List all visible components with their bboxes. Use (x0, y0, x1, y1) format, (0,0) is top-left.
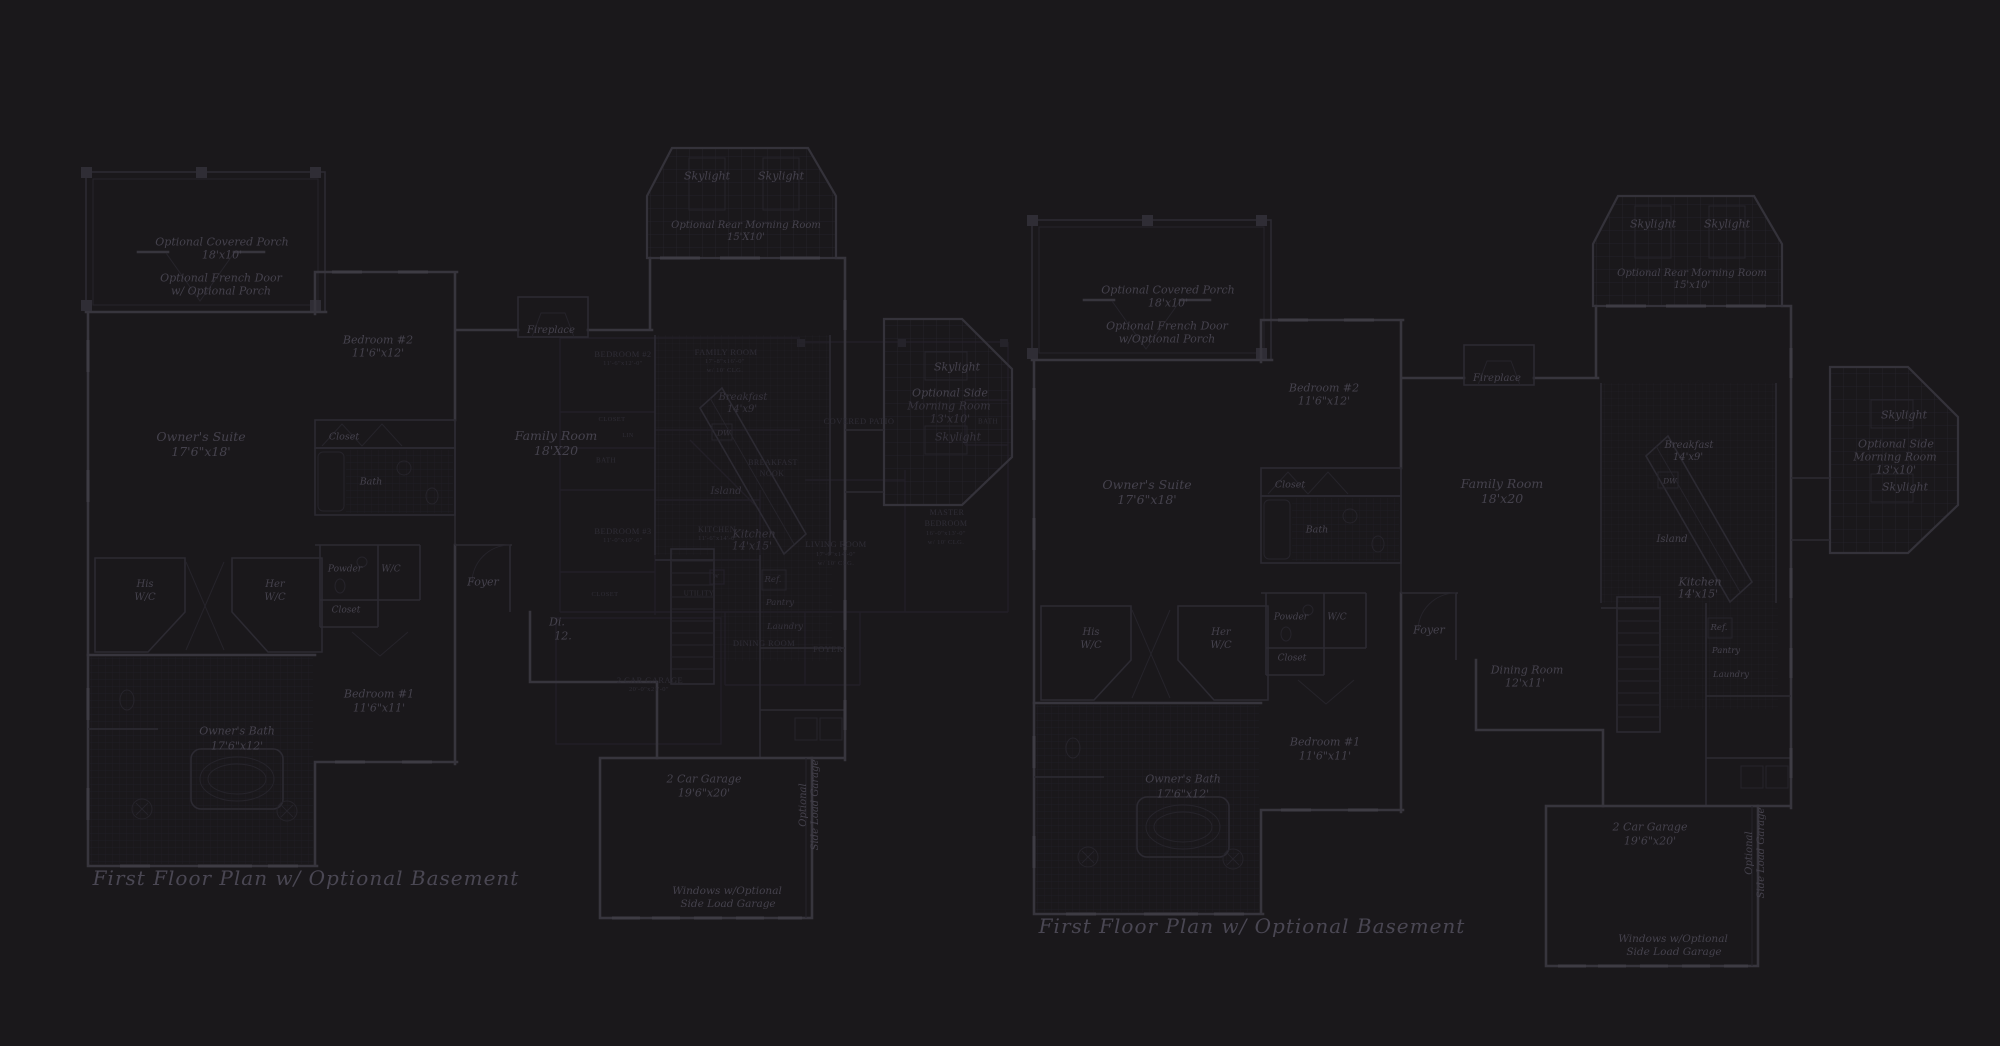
room-label: Side Load Garage (1626, 947, 1721, 958)
room-label: 19'6"x20' (678, 788, 730, 799)
room-label: 14'x9' (1673, 453, 1703, 463)
room-label: Skylight (1704, 219, 1750, 230)
room-label: 18'x20 (1481, 493, 1523, 506)
room-label: 14'x15' (1678, 589, 1718, 600)
room-label: Family Room (515, 430, 597, 443)
room-label: Skylight (684, 171, 730, 182)
room-label: COVERED PATIO (824, 417, 895, 426)
room-label: Optional Rear Morning Room (671, 221, 821, 231)
room-label: NOOK (760, 470, 785, 478)
room-label: Closet (329, 432, 359, 442)
room-label: Fireplace (527, 326, 575, 336)
room-label: Powder (1274, 614, 1308, 623)
room-label: BEDROOM (925, 520, 968, 528)
room-label: Bath (1306, 525, 1329, 535)
room-label: W/C (381, 566, 400, 575)
room-label: w/ 10' CLG. (928, 540, 964, 547)
room-label: 20'-0"x21'-0" (629, 687, 669, 694)
room-label: Skylight (935, 432, 981, 443)
room-label: w/ Optional Porch (171, 286, 271, 297)
room-label: Optional French Door (1106, 321, 1228, 332)
plan-title: First Floor Plan w/ Optional Basement (93, 868, 520, 888)
room-label: 11'-6"x14'-0" (698, 536, 738, 543)
room-label: Pantry (766, 599, 794, 608)
room-label: Optional Rear Morning Room (1617, 269, 1767, 279)
room-label: W/C (264, 593, 285, 603)
room-label: 12'x11' (1505, 678, 1545, 689)
room-label: Skylight (1882, 482, 1928, 493)
room-label: Side Load Garage (811, 760, 821, 851)
room-label: 11'-6"x12'-0" (603, 361, 643, 368)
room-label: w/ 10' CLG. (707, 368, 743, 375)
room-label: Owner's Suite (156, 431, 245, 444)
room-label: W (713, 574, 720, 581)
room-label: 16'-0"x13'-0" (926, 531, 966, 538)
room-label: Bedroom #2 (1289, 383, 1359, 394)
room-label: 2 CAR GARAGE (617, 676, 683, 685)
room-label: 11'6"x11' (353, 703, 405, 714)
room-label: Ref. (1711, 624, 1728, 633)
room-label: Her (1211, 628, 1230, 638)
room-label: 17'6"x18' (1117, 494, 1176, 507)
room-label: 17'-0"x14'-0" (816, 552, 856, 559)
room-label: Skylight (934, 362, 980, 373)
room-label: 12. (554, 631, 572, 642)
room-label: Owner's Bath (1145, 774, 1221, 785)
room-label: Kitchen (1679, 577, 1722, 588)
room-label: Breakfast (719, 393, 768, 403)
room-label: W/C (1327, 614, 1346, 623)
room-label: Island (710, 487, 741, 497)
room-label: Optional (1745, 831, 1755, 874)
room-label: Di. (549, 617, 565, 628)
room-label: Optional Covered Porch (155, 237, 288, 248)
plan-title: First Floor Plan w/ Optional Basement (1039, 916, 1466, 936)
room-label: Windows w/Optional (672, 886, 782, 897)
room-label: Foyer (467, 577, 499, 588)
room-label: Laundry (767, 623, 803, 632)
room-label: Bath (360, 477, 383, 487)
room-label: Family Room (1461, 478, 1543, 491)
room-label: W/C (1210, 641, 1231, 651)
room-label: 15'X10' (727, 233, 765, 243)
room-label: W/C (134, 593, 155, 603)
room-label: Closet (1278, 655, 1307, 664)
room-label: 11'6"x12' (352, 348, 404, 359)
room-label: w/Optional Porch (1119, 334, 1215, 345)
room-label: 18'x10' (202, 250, 242, 261)
room-label: BATH (596, 458, 616, 465)
room-label: 18'x10' (1148, 298, 1188, 309)
room-label: Foyer (1413, 625, 1445, 636)
room-label: LIN (622, 433, 633, 439)
room-label: His (136, 580, 153, 590)
room-label: Side Load Garage (1757, 808, 1767, 899)
room-label: Optional Side (1858, 439, 1934, 450)
room-label: 13'x10' (1876, 465, 1916, 476)
room-label: Skylight (1630, 219, 1676, 230)
room-label: Bedroom #1 (344, 689, 414, 700)
room-label: w/ 10' CLG. (818, 561, 854, 568)
room-label: Owner's Suite (1102, 479, 1191, 492)
room-label: His (1082, 628, 1099, 638)
room-label: Breakfast (1665, 441, 1714, 451)
room-label: Optional Side (912, 388, 988, 399)
room-label: UTILITY (684, 591, 714, 598)
room-label: Bedroom #1 (1290, 737, 1360, 748)
room-label: Dining Room (1491, 665, 1564, 676)
room-label: 11'6"x12' (1298, 396, 1350, 407)
room-label: 19'6"x20' (1624, 836, 1676, 847)
room-label: W/C (1080, 641, 1101, 651)
room-label: Side Load Garage (680, 899, 775, 910)
room-label: Her (265, 580, 284, 590)
blueprint-canvas: Optional Covered Porch18'x10'Optional Fr… (0, 0, 2000, 1046)
room-label: Closet (1275, 480, 1305, 490)
room-label: 14'x15' (732, 541, 772, 552)
room-label: DW (717, 429, 731, 437)
room-label: DINING ROOM (733, 639, 795, 648)
room-label: Ref. (765, 576, 782, 585)
room-label: Optional Covered Porch (1101, 285, 1234, 296)
room-label: FAMILY ROOM (695, 348, 758, 357)
room-label: Fireplace (1473, 374, 1521, 384)
room-label: Kitchen (733, 529, 776, 540)
room-label: Optional French Door (160, 273, 282, 284)
room-label: 11'-0"x10'-6" (603, 538, 643, 545)
room-label: CLOSET (592, 592, 619, 599)
room-label: Morning Room (1853, 452, 1936, 463)
room-label: BEDROOM #3 (594, 527, 651, 536)
room-label: KITCHEN (698, 526, 736, 534)
room-label: BREAKFAST (748, 459, 798, 467)
room-label: BATH (978, 419, 998, 426)
room-label: Powder (328, 566, 362, 575)
room-label: Laundry (1713, 671, 1749, 680)
room-label: Optional (799, 783, 809, 826)
room-label: Windows w/Optional (1618, 934, 1728, 945)
room-label: 17'6"x18' (171, 446, 230, 459)
room-label: 17'6"x12' (1157, 789, 1209, 800)
room-label: MASTER (930, 509, 965, 517)
room-label: 17'6"x12' (211, 741, 263, 752)
room-label: Closet (332, 607, 361, 616)
room-labels-layer: Optional Covered Porch18'x10'Optional Fr… (0, 0, 2000, 1046)
room-label: 18'X20 (534, 445, 578, 458)
room-label: Owner's Bath (199, 726, 275, 737)
room-label: FOYER (813, 645, 843, 654)
room-label: LIVING ROOM (805, 540, 866, 549)
room-label: Morning Room (907, 401, 990, 412)
room-label: 13'x10' (930, 414, 970, 425)
room-label: DW (1663, 477, 1677, 485)
room-label: CLOSET (599, 417, 626, 424)
room-label: Pantry (1712, 647, 1740, 656)
room-label: 14'x9' (727, 405, 757, 415)
room-label: 17'-8"x16'-0" (705, 359, 745, 366)
room-label: 15'x10' (1674, 281, 1711, 291)
room-label: 2 Car Garage (1613, 822, 1688, 833)
room-label: Bedroom #2 (343, 335, 413, 346)
room-label: Island (1656, 535, 1687, 545)
room-label: Skylight (1881, 410, 1927, 421)
room-label: 2 Car Garage (667, 774, 742, 785)
room-label: Skylight (758, 171, 804, 182)
room-label: 11'6"x11' (1299, 751, 1351, 762)
room-label: BEDROOM #2 (594, 350, 651, 359)
